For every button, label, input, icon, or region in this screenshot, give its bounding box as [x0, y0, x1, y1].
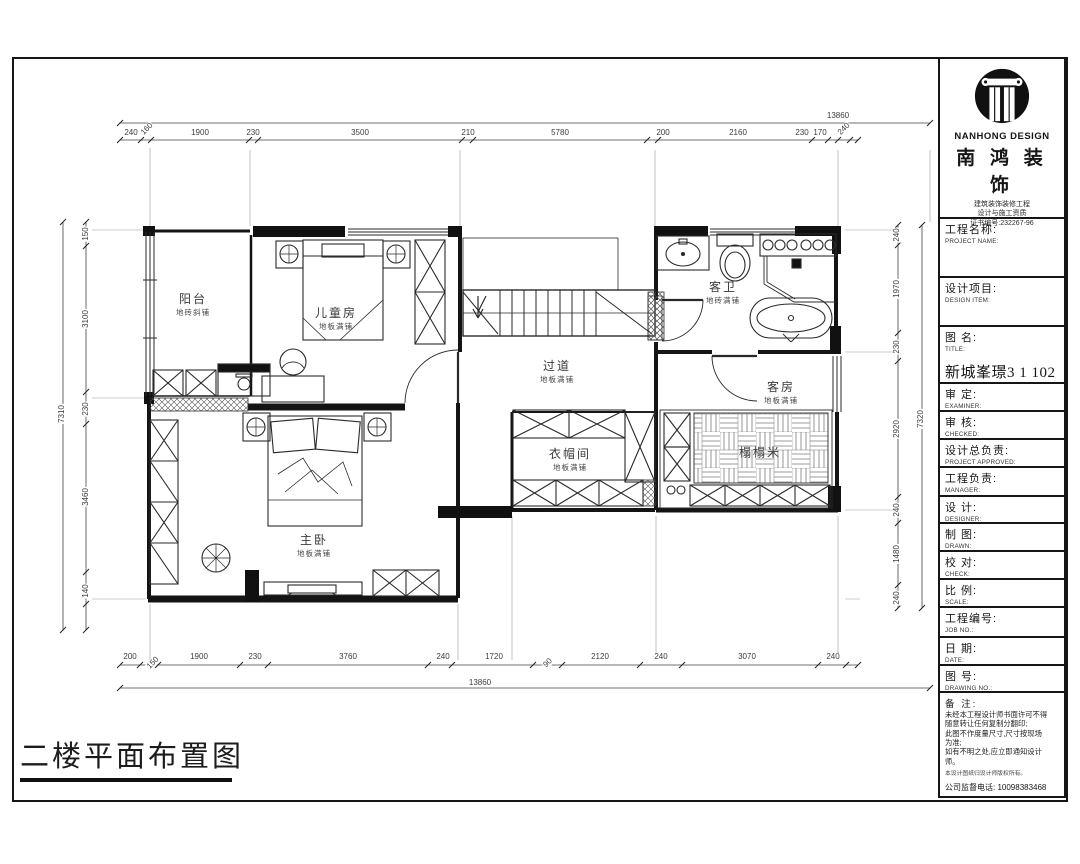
field-label-cn: 工程负责:: [945, 470, 1059, 486]
field-label-en: DESIGNER:: [945, 516, 1059, 523]
field-label-cn: 审 核:: [945, 414, 1059, 430]
field-label-en: TITLE:: [945, 346, 1059, 353]
field-label-cn: 日 期:: [945, 640, 1059, 656]
bath-fixtures: [648, 234, 836, 342]
field-check: 校 对: CHECK:: [940, 550, 1064, 578]
company-logo-block: NANHONG DESIGN 南 鸿 装 饰 建筑装饰装修工程 设计与施工资质 …: [940, 59, 1064, 217]
field-examiner: 审 定: EXAMINER:: [940, 382, 1064, 410]
field-label-cn: 比 例:: [945, 582, 1059, 598]
note-line: 此图不作度量尺寸,尺寸按现场: [945, 729, 1059, 738]
field-label-en: DRAWN:: [945, 543, 1059, 550]
sheet-title: 二楼平面布置图: [20, 733, 244, 782]
notes-title: 备 注:: [945, 696, 1059, 710]
note-line: 为准;: [945, 738, 1059, 747]
field-label-cn: 设 计:: [945, 499, 1059, 515]
stairs: [463, 238, 664, 340]
field-design-item: 设计项目: DESIGN ITEM:: [940, 276, 1064, 325]
cert-line: 建筑装饰装修工程: [940, 200, 1064, 209]
field-label-en: SCALE:: [945, 599, 1059, 606]
field-designer: 设 计: DESIGNER:: [940, 495, 1064, 523]
title-block: NANHONG DESIGN 南 鸿 装 饰 建筑装饰装修工程 设计与施工资质 …: [938, 57, 1066, 798]
field-project-approved: 设计总负责: PROJECT APPROVED:: [940, 438, 1064, 467]
field-label-en: CHECKED:: [945, 431, 1059, 438]
drawing-sheet: 阳台 地砖斜铺 儿童房 地板满铺 过道 地板满铺 客卫 地砖满铺 客房 地板满铺…: [0, 0, 1080, 864]
field-label-cn: 工程名称:: [945, 221, 1059, 237]
field-label-cn: 制 图:: [945, 526, 1059, 542]
hotline-phone: 公司监督电话: 10098383468: [945, 782, 1059, 793]
field-project-name: 工程名称: PROJECT NAME:: [940, 217, 1064, 276]
field-scale: 比 例: SCALE:: [940, 578, 1064, 607]
column-logo-icon: [971, 67, 1033, 125]
note-line: 如有不明之处,应立即通知设计: [945, 747, 1059, 756]
field-label-en: CHECK:: [945, 571, 1059, 578]
field-label-cn: 校 对:: [945, 554, 1059, 570]
master-furniture: [150, 413, 439, 596]
field-label-en: JOB NO.:: [945, 627, 1059, 634]
field-label-en: EXAMINER:: [945, 403, 1059, 410]
field-label-en: DESIGN ITEM:: [945, 297, 1059, 304]
field-date: 日 期: DATE:: [940, 636, 1064, 665]
note-line: 随意转让任何复制分翻印;: [945, 719, 1059, 728]
field-manager: 工程负责: MANAGER:: [940, 466, 1064, 495]
brand-name-cn: 南 鸿 装 饰: [940, 143, 1064, 197]
cloakroom-wardrobes: [513, 410, 656, 506]
field-label-en: MANAGER:: [945, 487, 1059, 494]
note-line: 未经本工程设计师书面许可不得: [945, 710, 1059, 719]
field-label-cn: 图 名:: [945, 329, 1059, 345]
field-label-cn: 工程编号:: [945, 610, 1059, 626]
field-label-en: PROJECT APPROVED:: [945, 459, 1059, 466]
note-line: 师。: [945, 757, 1059, 766]
field-job-no: 工程编号: JOB NO.:: [940, 606, 1064, 636]
field-label-cn: 审 定:: [945, 386, 1059, 402]
title-underline: [20, 778, 232, 782]
field-label-cn: 设计总负责:: [945, 442, 1059, 458]
tatami-platform: [660, 410, 832, 508]
field-label-en: PROJECT NAME:: [945, 238, 1059, 245]
field-checked: 审 核: CHECKED:: [940, 410, 1064, 438]
project-title-value: 新城峯璟3 1 102: [945, 361, 1059, 382]
field-drawing-title: 图 名: TITLE: 新城峯璟3 1 102: [940, 325, 1064, 382]
kids-furniture: [262, 240, 445, 402]
field-drawn: 制 图: DRAWN:: [940, 522, 1064, 550]
brand-name-en: NANHONG DESIGN: [940, 131, 1064, 142]
field-drawing-no: 图 号: DRAWING NO.:: [940, 664, 1064, 691]
field-label-en: DATE:: [945, 657, 1059, 664]
sheet-title-text: 二楼平面布置图: [20, 741, 244, 773]
field-label-cn: 图 号:: [945, 668, 1059, 684]
field-label-cn: 设计项目:: [945, 280, 1059, 296]
notes-block: 备 注: 未经本工程设计师书面许可不得 随意转让任何复制分翻印; 此图不作度量尺…: [940, 691, 1064, 796]
windows: [143, 229, 841, 412]
note-fineprint: 本设计图纸归设计师版权所有。: [945, 768, 1059, 777]
